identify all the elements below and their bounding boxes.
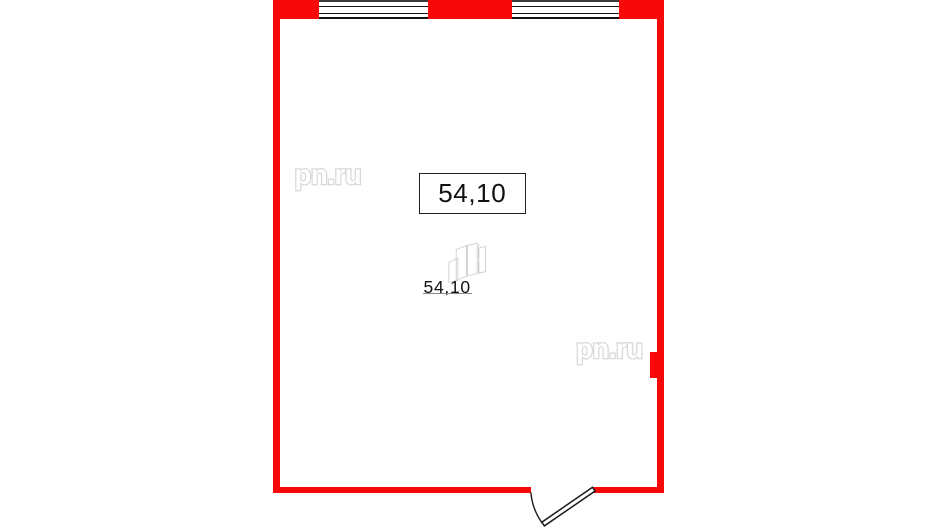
- svg-text:pn.ru: pn.ru: [295, 159, 362, 190]
- svg-text:pn.ru: pn.ru: [576, 333, 643, 364]
